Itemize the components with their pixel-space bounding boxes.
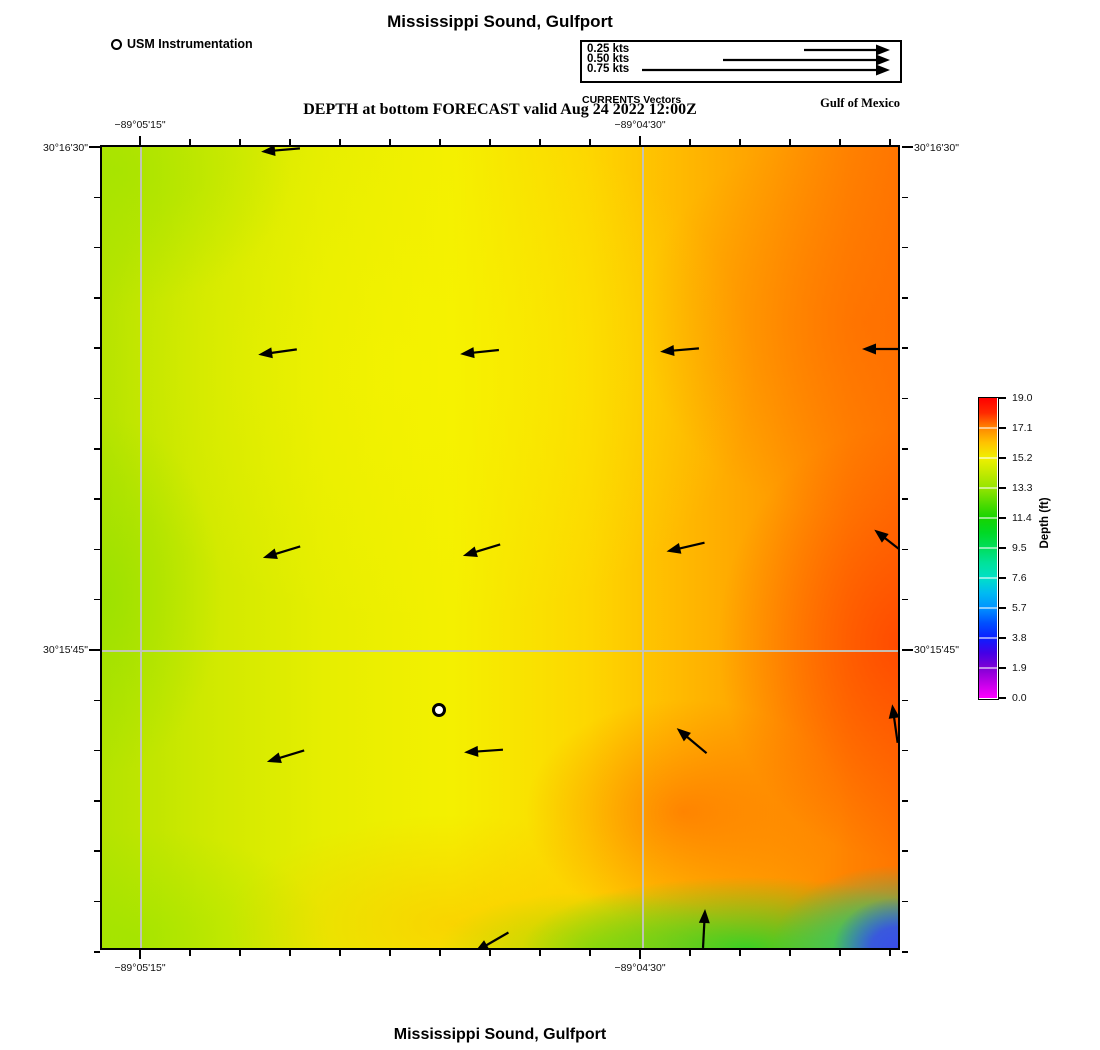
y-axis-tick (94, 951, 100, 953)
colorbar-level-line (979, 607, 997, 608)
figure-title-bottom: Mississippi Sound, Gulfport (0, 1026, 1000, 1044)
y-axis-tick (902, 247, 908, 249)
y-tick-label-right-bottom: 30°15'45" (914, 644, 959, 656)
y-axis-tick (94, 448, 100, 450)
y-axis-tick (94, 247, 100, 249)
gridline-lat-1 (102, 650, 898, 652)
x-axis-tick (839, 950, 841, 956)
x-axis-tick (389, 139, 391, 145)
x-axis-tick (439, 139, 441, 145)
y-tick-label-right-top: 30°16'30" (914, 142, 959, 154)
x-tick-label-top-right: −89°04'30" (614, 119, 665, 131)
colorbar-tick-label: 7.6 (1012, 572, 1054, 584)
y-axis-tick (902, 498, 908, 500)
x-axis-tick (289, 950, 291, 956)
colorbar-tick (999, 457, 1006, 459)
x-tick-label-bottom-right: −89°04'30" (614, 962, 665, 974)
y-axis-tick (902, 448, 908, 450)
x-axis-tick (639, 136, 641, 145)
y-axis-tick (94, 599, 100, 601)
colorbar-level-line (979, 487, 997, 488)
colorbar-level-line (979, 547, 997, 548)
y-axis-tick (89, 649, 100, 651)
x-axis-tick (489, 139, 491, 145)
colorbar-axis-label: Depth (ft) (1039, 483, 1053, 563)
x-tick-label-bottom-left: −89°05'15" (114, 962, 165, 974)
colorbar-level-line (979, 517, 997, 518)
vector-legend-arrow (641, 63, 890, 77)
colorbar-level-line (979, 637, 997, 638)
y-axis-tick (94, 347, 100, 349)
y-axis-tick (902, 901, 908, 903)
colorbar-tick (999, 397, 1006, 399)
instrument-circle-icon (111, 39, 122, 50)
current-vector (265, 743, 307, 768)
colorbar-tick (999, 667, 1006, 669)
y-axis-tick (89, 146, 100, 148)
current-vector (471, 926, 513, 948)
x-tick-label-top-left: −89°05'15" (114, 119, 165, 131)
y-axis-tick (94, 700, 100, 702)
current-vector (862, 342, 898, 356)
x-axis-tick (639, 950, 641, 959)
current-vector (257, 342, 299, 361)
colorbar-tick (999, 517, 1006, 519)
y-axis-tick (902, 599, 908, 601)
y-axis-tick (902, 398, 908, 400)
x-axis-tick (139, 136, 141, 145)
current-vector (665, 536, 707, 559)
y-tick-label-left-bottom: 30°15'45" (0, 644, 88, 656)
colorbar-level-line (979, 427, 997, 428)
usm-legend-label: USM Instrumentation (127, 37, 253, 51)
x-axis-tick (889, 950, 891, 956)
y-axis-tick (902, 850, 908, 852)
y-axis-tick (902, 347, 908, 349)
y-axis-tick (94, 398, 100, 400)
y-axis-tick (94, 297, 100, 299)
colorbar-tick-label: 3.8 (1012, 632, 1054, 644)
colorbar-level-line (979, 667, 997, 668)
x-axis-tick (189, 139, 191, 145)
colorbar-tick-label: 17.1 (1012, 422, 1054, 434)
current-vector (696, 909, 712, 948)
colorbar-tick (999, 487, 1006, 489)
gridline-lon-2 (642, 147, 644, 948)
figure: Mississippi Sound, Gulfport USM Instrume… (0, 0, 1100, 1050)
colorbar: 19.017.115.213.311.49.57.65.73.81.90.0 (978, 397, 999, 700)
current-vector (885, 703, 898, 745)
y-axis-tick (94, 549, 100, 551)
colorbar-tick (999, 547, 1006, 549)
y-axis-tick (902, 146, 913, 148)
usm-instrument-marker (432, 703, 446, 717)
colorbar-tick (999, 637, 1006, 639)
x-axis-tick (389, 950, 391, 956)
y-axis-tick (94, 800, 100, 802)
colorbar-tick-label: 15.2 (1012, 452, 1054, 464)
x-axis-tick (589, 950, 591, 956)
y-axis-tick (902, 549, 908, 551)
x-axis-tick (739, 950, 741, 956)
x-axis-tick (689, 139, 691, 145)
y-tick-label-left-top: 30°16'30" (0, 142, 88, 154)
colorbar-tick-label: 5.7 (1012, 602, 1054, 614)
x-axis-tick (339, 139, 341, 145)
y-axis-tick (902, 700, 908, 702)
x-axis-tick (139, 950, 141, 959)
x-axis-tick (489, 950, 491, 956)
colorbar-tick (999, 427, 1006, 429)
x-axis-tick (189, 950, 191, 956)
current-vector (261, 539, 303, 564)
colorbar-tick (999, 697, 1006, 699)
x-axis-tick (789, 950, 791, 956)
x-axis-tick (539, 139, 541, 145)
current-vector (459, 343, 500, 361)
y-axis-tick (902, 951, 908, 953)
current-vector (870, 524, 898, 560)
x-axis-tick (239, 139, 241, 145)
x-axis-tick (239, 950, 241, 956)
y-axis-tick (902, 297, 908, 299)
x-axis-tick (839, 139, 841, 145)
x-axis-tick (789, 139, 791, 145)
usm-instrumentation-legend: USM Instrumentation (111, 36, 253, 52)
x-axis-tick (539, 950, 541, 956)
y-axis-tick (902, 197, 908, 199)
currents-vector-legend-box: 0.25 kts0.50 kts0.75 kts (580, 40, 902, 83)
figure-title: Mississippi Sound, Gulfport (0, 12, 1000, 32)
colorbar-level-line (979, 577, 997, 578)
map-frame (100, 145, 900, 950)
y-axis-tick (902, 800, 908, 802)
current-vector (659, 341, 700, 358)
y-axis-tick (94, 850, 100, 852)
y-axis-tick (94, 901, 100, 903)
y-axis-tick (902, 649, 913, 651)
x-axis-tick (739, 139, 741, 145)
colorbar-tick-label: 1.9 (1012, 662, 1054, 674)
y-axis-tick (902, 750, 908, 752)
x-axis-tick (689, 950, 691, 956)
colorbar-tick-label: 19.0 (1012, 392, 1054, 404)
y-axis-tick (94, 498, 100, 500)
current-vector (461, 537, 503, 562)
current-vector (464, 743, 505, 760)
x-axis-tick (339, 950, 341, 956)
current-vector (260, 147, 301, 159)
x-axis-tick (889, 139, 891, 145)
colorbar-tick-label: 0.0 (1012, 692, 1054, 704)
colorbar-tick (999, 607, 1006, 609)
gulf-of-mexico-label: Gulf of Mexico (700, 96, 900, 111)
x-axis-tick (589, 139, 591, 145)
gridline-lon-1 (140, 147, 142, 948)
vector-legend-speed-label: 0.75 kts (587, 64, 629, 75)
colorbar-level-line (979, 457, 997, 458)
x-axis-tick (289, 139, 291, 145)
map-plot (102, 147, 898, 948)
x-axis-tick (439, 950, 441, 956)
y-axis-tick (94, 197, 100, 199)
current-vector (672, 723, 712, 759)
y-axis-tick (94, 750, 100, 752)
colorbar-tick (999, 577, 1006, 579)
